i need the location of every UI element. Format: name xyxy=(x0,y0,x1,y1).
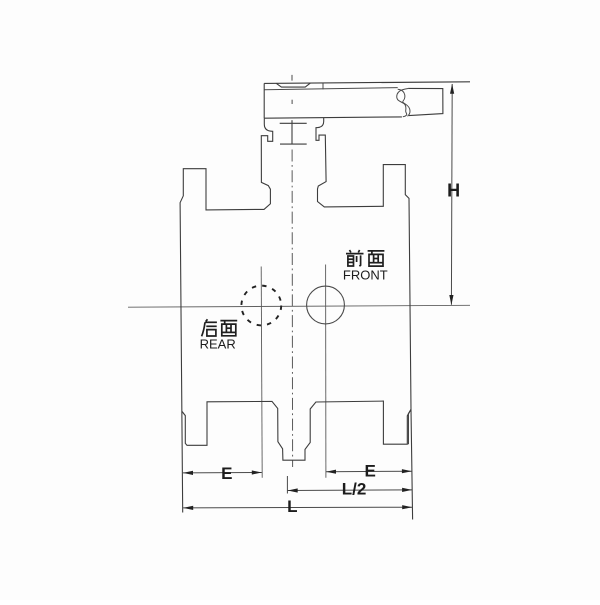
svg-text:H: H xyxy=(447,180,460,200)
svg-text:L/2: L/2 xyxy=(342,480,367,499)
svg-text:FRONT: FRONT xyxy=(343,268,388,283)
svg-text:REAR: REAR xyxy=(200,337,236,352)
svg-text:E: E xyxy=(221,464,232,483)
svg-text:E: E xyxy=(365,462,376,481)
svg-text:L: L xyxy=(287,497,297,516)
